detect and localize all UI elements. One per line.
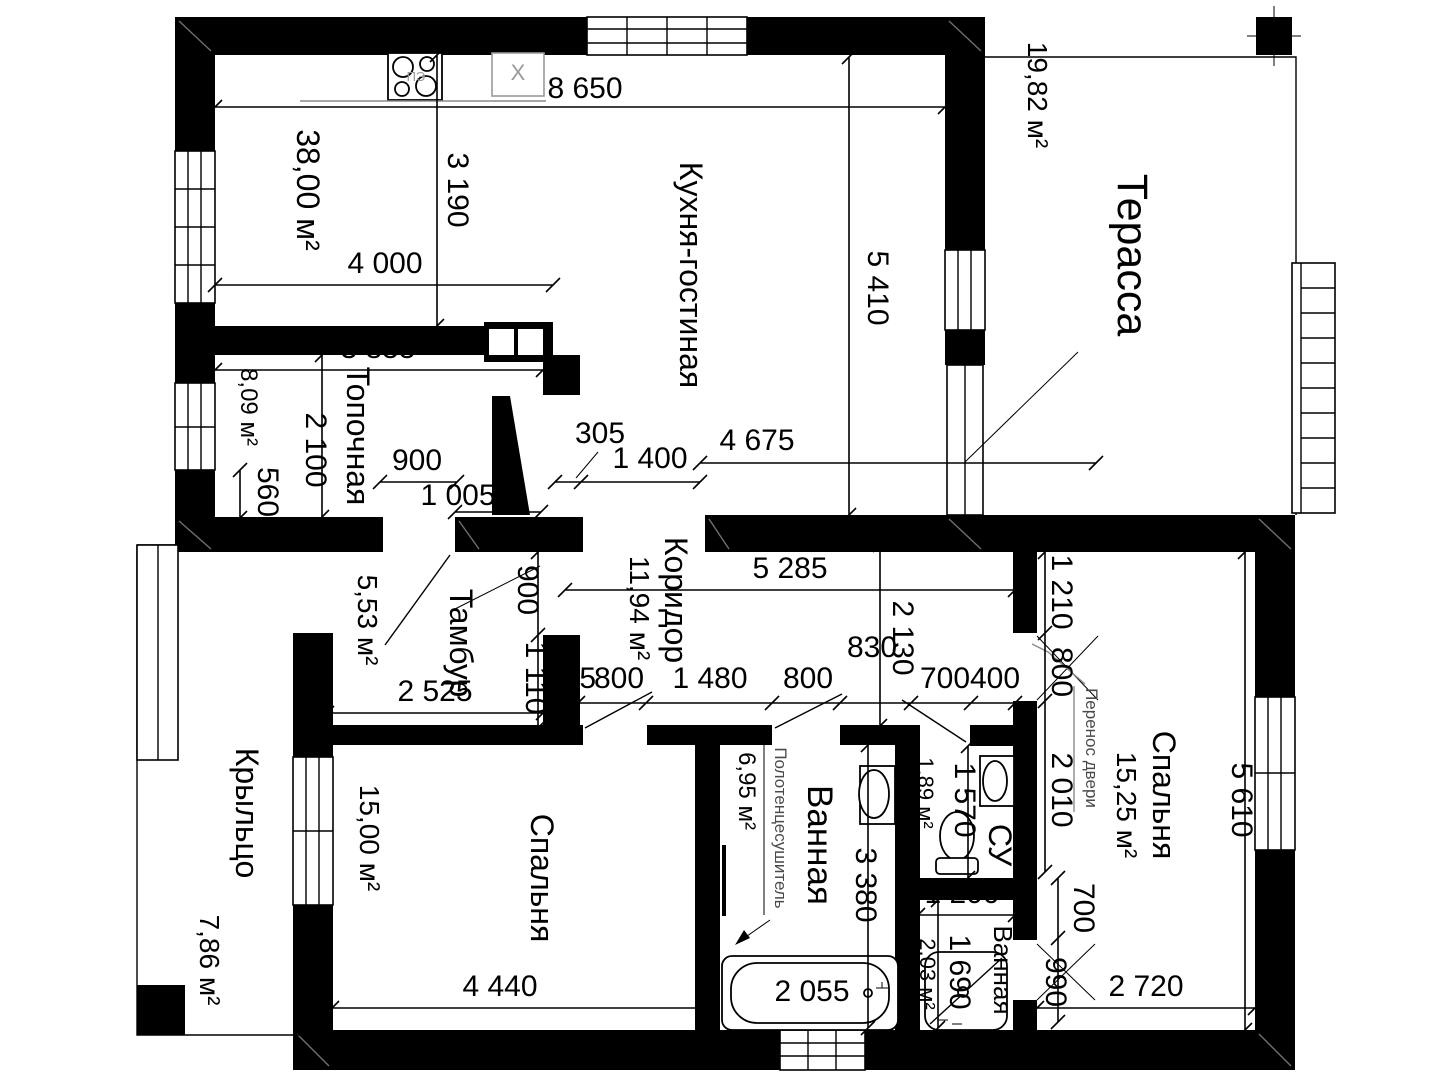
dim-shower-door-top: 700 [1067, 883, 1100, 933]
dim-boiler-door: 900 [392, 444, 442, 477]
appliance-label: X [511, 60, 526, 85]
entry-door-swing [385, 555, 450, 645]
wc-sink-icon [980, 756, 1014, 806]
room-corridor-area: 11,94 м² [624, 556, 655, 660]
room-bedroom-right-name: Спальня [1146, 731, 1182, 860]
dim-corridor-width: 2 130 [886, 600, 919, 675]
dim-bedroom-right-depth: 5 610 [1225, 762, 1258, 837]
room-porch-area: 7,86 м² [194, 915, 225, 1006]
stove-label: ПЭ [407, 69, 426, 84]
bedroom-left-door-swing [585, 692, 652, 728]
room-kitchen-living-area: 38,00 м² [290, 129, 326, 251]
dim-corridor-length: 5 285 [752, 552, 827, 585]
dim-boiler-wall: 560 [251, 467, 284, 517]
dim-bedroom-left-door: 800 [594, 662, 644, 695]
dim-kitchen-left-width: 4 000 [347, 247, 422, 280]
dim-bedroom-right-wall-bottom: 2 010 [1045, 752, 1078, 827]
boiler-door-leaf [492, 396, 530, 515]
dim-bedroom-right-door: 800 [1045, 647, 1078, 697]
terrace-glass-door [947, 365, 983, 515]
dim-shower-door: 990 [1039, 957, 1072, 1007]
dim-bathroom-depth: 3 380 [849, 847, 882, 922]
room-bedroom-left-name: Спальня [524, 814, 560, 943]
dim-seg-400: 400 [970, 662, 1020, 695]
room-bedroom-right-area: 15,25 м² [1111, 752, 1142, 858]
dim-bathtub-length: 2 055 [774, 975, 849, 1008]
wall-thickness-leader [576, 452, 598, 478]
room-boiler-name: Топочная [340, 367, 376, 506]
annotation-towel-dryer: Полотенцесушитель [771, 747, 790, 908]
room-wc-name: СУ [982, 824, 1018, 867]
room-shower-area: 2,03 м² [915, 938, 940, 1009]
room-wc-area: 1,89 м² [913, 757, 938, 828]
floor-plan-page: 8 650 4 000 3 855 900 1 005 305 1 400 4 … [0, 0, 1440, 1080]
towel-dryer-arrowhead [735, 930, 750, 945]
dim-kitchen-left-depth: 3 190 [441, 152, 474, 227]
dim-living-width: 4 675 [719, 424, 794, 457]
dim-bedroom-right-width: 2 720 [1108, 970, 1183, 1003]
dim-house-top-width: 8 650 [547, 72, 622, 105]
room-vestibule-area: 5,53 м² [352, 575, 383, 666]
dim-kitchen-right-depth: 5 410 [861, 250, 894, 325]
porch-steps [137, 545, 178, 760]
annotation-door-relocation: Перенос двери [1082, 688, 1101, 808]
dim-shower-depth: 1 690 [943, 934, 976, 1009]
room-kitchen-living-name: Кухня-гостиная [673, 162, 709, 388]
window-bedroom-left [293, 757, 333, 905]
floor-plan-drawing: 8 650 4 000 3 855 900 1 005 305 1 400 4 … [0, 0, 1440, 1080]
window-kitchen-right [945, 250, 985, 330]
dim-bathroom-door: 800 [783, 662, 833, 695]
room-shower-name: Ванная [988, 925, 1018, 1014]
dim-boiler-depth: 2 100 [299, 412, 332, 487]
room-boiler-area: 8,09 м² [235, 368, 262, 446]
room-bathroom-area: 6,95 м² [733, 752, 760, 830]
window-bottom [780, 1030, 865, 1070]
room-bedroom-left-area: 15,00 м² [354, 785, 385, 891]
dim-bedroom-left-width: 4 440 [462, 970, 537, 1003]
dim-vestibule-wall: 1 110 [519, 642, 552, 715]
dim-wc-door: 700 [920, 662, 970, 695]
terrace-stairs [1292, 263, 1335, 513]
room-terrace-area: 19,82 м² [1022, 42, 1053, 148]
window-top [587, 17, 747, 55]
dim-seg-275: 275 [546, 662, 596, 695]
dim-boiler-width: 3 855 [340, 332, 415, 365]
room-vestibule-name: Тамбур [443, 589, 479, 698]
dim-shower-width: 1 200 [924, 877, 999, 910]
window-bedroom-right [1255, 697, 1295, 850]
dim-bedroom-right-wall-top: 1 210 [1045, 554, 1078, 629]
dim-kitchen-opening: 1 400 [612, 442, 687, 475]
room-porch-name: Крыльцо [229, 748, 265, 879]
room-terrace-name: Терасса [1108, 174, 1156, 337]
bathroom-sink-icon [859, 766, 895, 824]
room-corridor-name: Коридор [658, 537, 694, 663]
window-left-2 [175, 383, 215, 470]
bathroom-door-swing [775, 694, 842, 728]
dim-wc-depth: 1 570 [948, 762, 981, 837]
dim-boiler-door-offset: 1 005 [420, 479, 495, 512]
dim-seg-1480: 1 480 [672, 662, 747, 695]
window-left-1 [175, 151, 215, 303]
room-bathroom-name: Ванная [800, 785, 839, 905]
dim-vestibule-door: 900 [511, 565, 544, 615]
